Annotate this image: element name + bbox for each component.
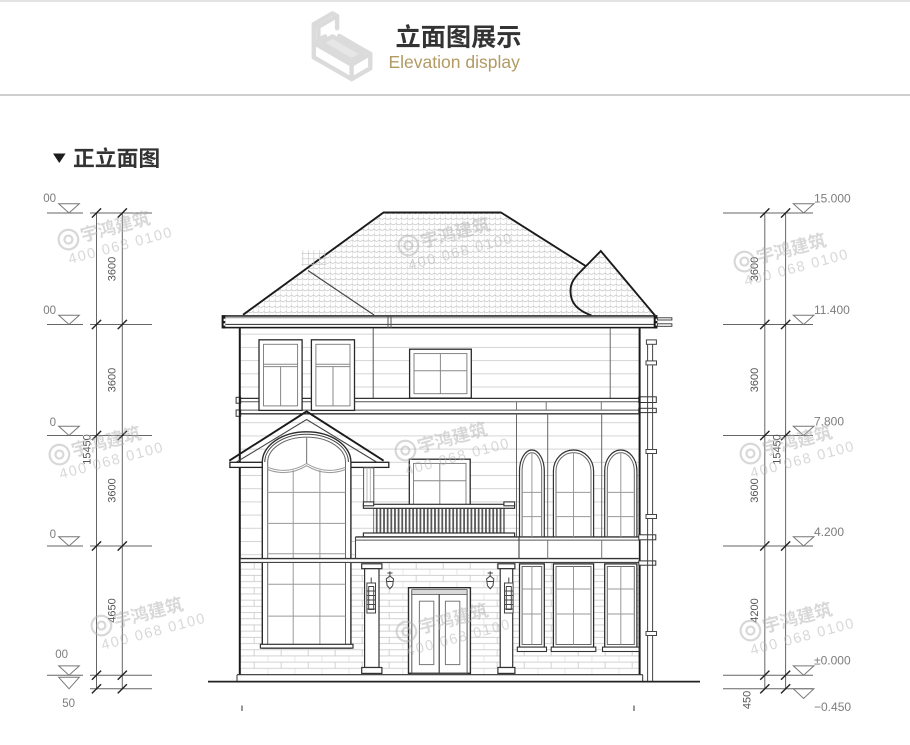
svg-text:3600: 3600 [749, 368, 761, 392]
svg-text:50: 50 [62, 698, 75, 710]
svg-text:11.400: 11.400 [814, 303, 850, 317]
svg-text:4200: 4200 [749, 598, 761, 622]
svg-text:Elevation display: Elevation display [389, 52, 521, 72]
svg-text:−0.450: −0.450 [814, 700, 851, 714]
svg-text:00: 00 [55, 649, 68, 661]
svg-text:3600: 3600 [107, 257, 119, 281]
svg-text:00: 00 [43, 305, 56, 317]
svg-text:4.200: 4.200 [814, 525, 844, 539]
svg-text:00: 00 [43, 193, 56, 205]
svg-text:450: 450 [742, 691, 754, 709]
svg-text:3600: 3600 [107, 478, 119, 502]
svg-text:0: 0 [50, 417, 56, 429]
svg-text:±0.000: ±0.000 [814, 654, 851, 668]
svg-text:15.000: 15.000 [814, 192, 851, 206]
svg-text:3600: 3600 [749, 478, 761, 502]
svg-text:3600: 3600 [107, 368, 119, 392]
svg-text:0: 0 [50, 529, 56, 541]
